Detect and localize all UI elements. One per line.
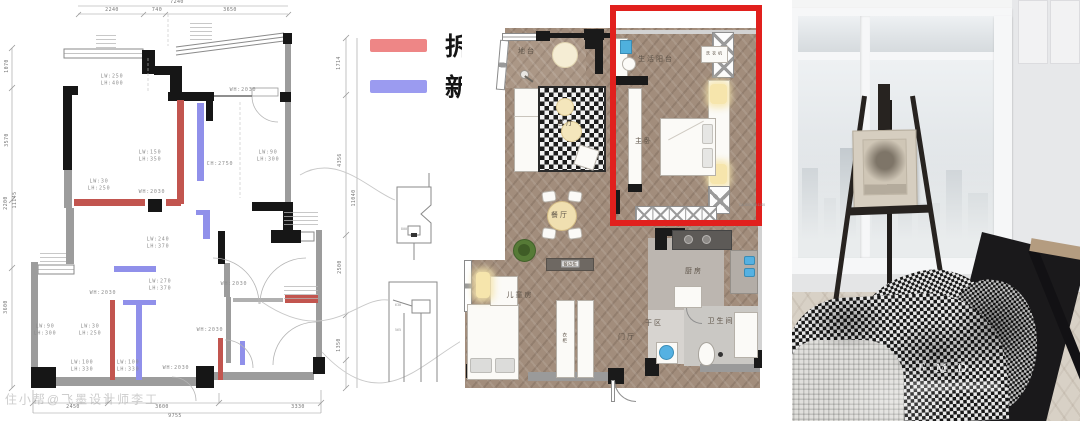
composite-image: 7240224074036501070357022001114536001714… bbox=[0, 0, 1080, 421]
plan-text: 4356 bbox=[337, 153, 343, 167]
plan-text: LW:270 LH:370 bbox=[149, 279, 172, 292]
plan-text: 9755 bbox=[168, 413, 182, 419]
photo-watermark: F·M·D bbox=[918, 360, 970, 376]
plan-text: 11040 bbox=[351, 189, 357, 206]
plan-text: 3600 bbox=[3, 300, 9, 314]
plan-text: LW:90 LH:300 bbox=[34, 324, 57, 337]
plan-text: CH:2750 bbox=[207, 161, 234, 168]
window-corner-post bbox=[994, 16, 1012, 258]
plan-text: 住小帮@飞墨设计师李工 bbox=[5, 391, 159, 408]
sketch bbox=[862, 139, 907, 196]
room-label: CA:300 CH:1100 bbox=[739, 203, 765, 207]
plan-text: 1070 bbox=[4, 59, 10, 73]
plan-text: 630 bbox=[395, 303, 401, 307]
interior-photo: F·M·D bbox=[792, 0, 1080, 421]
plan-text: LW:150 LH:350 bbox=[139, 150, 162, 163]
closet-door bbox=[1050, 0, 1080, 64]
plan-text: 3650 bbox=[223, 7, 237, 13]
room-label: 客厅 bbox=[557, 120, 575, 128]
plan-text: 2500 bbox=[337, 260, 343, 274]
room-label: 干区 bbox=[645, 320, 663, 328]
photo-watermark-sub bbox=[912, 382, 1000, 391]
demolish-swatch bbox=[370, 39, 427, 52]
plan-text: 7240 bbox=[170, 0, 184, 5]
plan-text: LW:250 LH:400 bbox=[101, 74, 124, 87]
plan-text: LW:100 LH:330 bbox=[117, 360, 140, 373]
room-label: 主卧 bbox=[635, 138, 653, 146]
plan-text: WH:2030 bbox=[197, 327, 224, 334]
plan-text: WH:2030 bbox=[139, 189, 166, 196]
room-labels: 地台客厅餐厅生活阳台主卧洗衣机儿童房厨房干区卫生间门厅餐边柜衣柜CA:300 C… bbox=[462, 0, 790, 421]
window-pane bbox=[798, 60, 860, 258]
plan-text: 565 bbox=[395, 328, 401, 332]
plan-text: 3570 bbox=[4, 133, 10, 147]
room-label: 餐厅 bbox=[551, 212, 569, 220]
newbuild-swatch bbox=[370, 80, 427, 93]
room-label: 洗衣机 bbox=[706, 52, 724, 57]
room-label: 衣柜 bbox=[562, 333, 567, 344]
blanket-shading bbox=[792, 268, 1042, 421]
room-label: 生活阳台 bbox=[638, 56, 674, 64]
easel-clamp bbox=[878, 84, 890, 136]
plan-text: LW:240 LH:370 bbox=[147, 237, 170, 250]
canvas bbox=[852, 129, 917, 210]
plan-text: 3600 bbox=[155, 404, 169, 410]
room-label: 卫生间 bbox=[708, 318, 735, 326]
plan-text: WH:2030 bbox=[163, 365, 190, 372]
plan-text: LW:100 LH:330 bbox=[71, 360, 94, 373]
cad-plan-texts: 7240224074036501070357022001114536001714… bbox=[0, 0, 460, 421]
plan-text: 2450 bbox=[66, 404, 80, 410]
plan-text: LW:90 LH:300 bbox=[257, 150, 280, 163]
plan-text: 2200 bbox=[3, 196, 9, 210]
window-pane bbox=[870, 16, 994, 52]
plan-text: 1714 bbox=[336, 56, 342, 70]
plan-text: 2240 bbox=[105, 7, 119, 13]
plan-text: 740 bbox=[152, 7, 162, 13]
rendered-floor-plan: 地台客厅餐厅生活阳台主卧洗衣机儿童房厨房干区卫生间门厅餐边柜衣柜CA:300 C… bbox=[462, 0, 790, 421]
plan-text: WH:2030 bbox=[90, 290, 117, 297]
plan-text: 11145 bbox=[12, 191, 18, 208]
plan-text: WH:2030 bbox=[230, 87, 257, 94]
room-label: 厨房 bbox=[685, 268, 703, 276]
plan-text: LW:30 LH:250 bbox=[79, 324, 102, 337]
plan-text: 1350 bbox=[336, 338, 342, 352]
plan-text: WH:2030 bbox=[221, 281, 248, 288]
closet-door bbox=[1018, 0, 1048, 64]
room-label: 地台 bbox=[518, 48, 536, 56]
window-pane bbox=[798, 16, 860, 52]
plan-text: 800 bbox=[401, 227, 407, 231]
room-label: 门厅 bbox=[618, 334, 636, 342]
room-label: 餐边柜 bbox=[561, 260, 579, 267]
plan-text: 3330 bbox=[291, 404, 305, 410]
room-label: 儿童房 bbox=[507, 292, 534, 300]
plan-text: LW:30 LH:250 bbox=[88, 179, 111, 192]
